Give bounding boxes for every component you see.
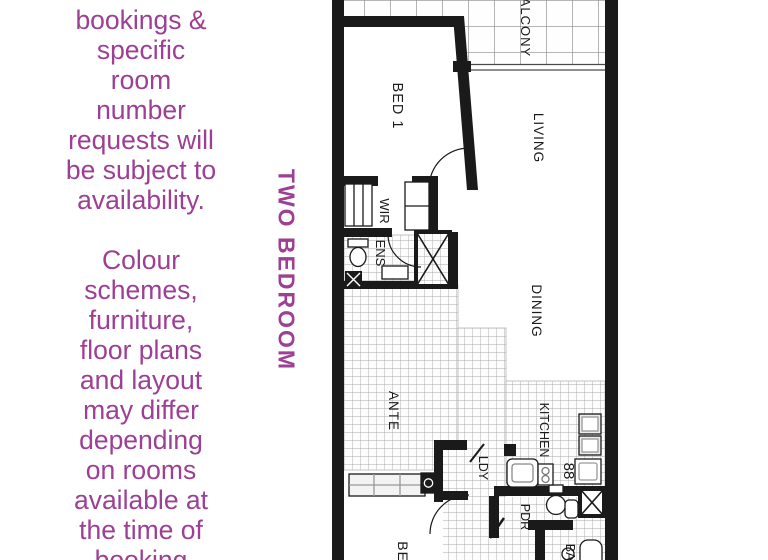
- room-label-bed1: BED 1: [389, 83, 405, 130]
- wall-rail-anchor: [453, 61, 471, 72]
- toilet-icon: [348, 239, 368, 267]
- floorplan: BALCONY BED 1 LIVING WIR ENS DINING ANTE…: [0, 0, 768, 560]
- room-label-pdr: PDR: [518, 504, 532, 530]
- wall-left: [332, 0, 344, 560]
- room-label-bath: BATH: [563, 544, 577, 560]
- water-heater-icon: [421, 473, 436, 493]
- page-root: bookings & specific room number requests…: [0, 0, 768, 560]
- fridge-icon: [579, 414, 601, 455]
- sink-icon: [538, 464, 553, 485]
- room-label-kitchen: KITCHEN: [537, 403, 551, 458]
- room-label-living: LIVING: [531, 113, 546, 163]
- dishwasher-icon: [575, 459, 601, 484]
- room-label-bed2: BED 2: [395, 541, 411, 560]
- vanity-icon: [382, 266, 408, 279]
- room-label-ldy: LDY: [476, 456, 490, 481]
- wall-wir-right: [429, 176, 438, 237]
- wall-wir-ens: [344, 228, 392, 237]
- wall-bath-left: [535, 530, 545, 560]
- bathtub-icon: [580, 540, 602, 560]
- wall-right: [605, 0, 618, 560]
- wall-ldy-top: [434, 440, 467, 450]
- wall-bed1-top: [344, 16, 458, 27]
- room-label-ante: ANTE: [386, 391, 401, 431]
- basin-icon: [565, 500, 578, 518]
- wardrobe-icon: [349, 474, 425, 496]
- room-label-wir: WIR: [377, 198, 392, 223]
- toilet-icon: [547, 485, 566, 515]
- stove-icon: 88: [560, 463, 577, 480]
- balcony-rail: [471, 65, 605, 71]
- balcony-floor: [344, 0, 458, 16]
- room-label-ens: ENS: [373, 240, 388, 267]
- room-label-balcony: BALCONY: [518, 0, 533, 57]
- laundry-tub-icon: [507, 459, 538, 487]
- room-label-dining: DINING: [529, 284, 544, 337]
- wall-pdr-bath: [528, 520, 573, 530]
- wall-ldy-kitchen: [504, 444, 516, 456]
